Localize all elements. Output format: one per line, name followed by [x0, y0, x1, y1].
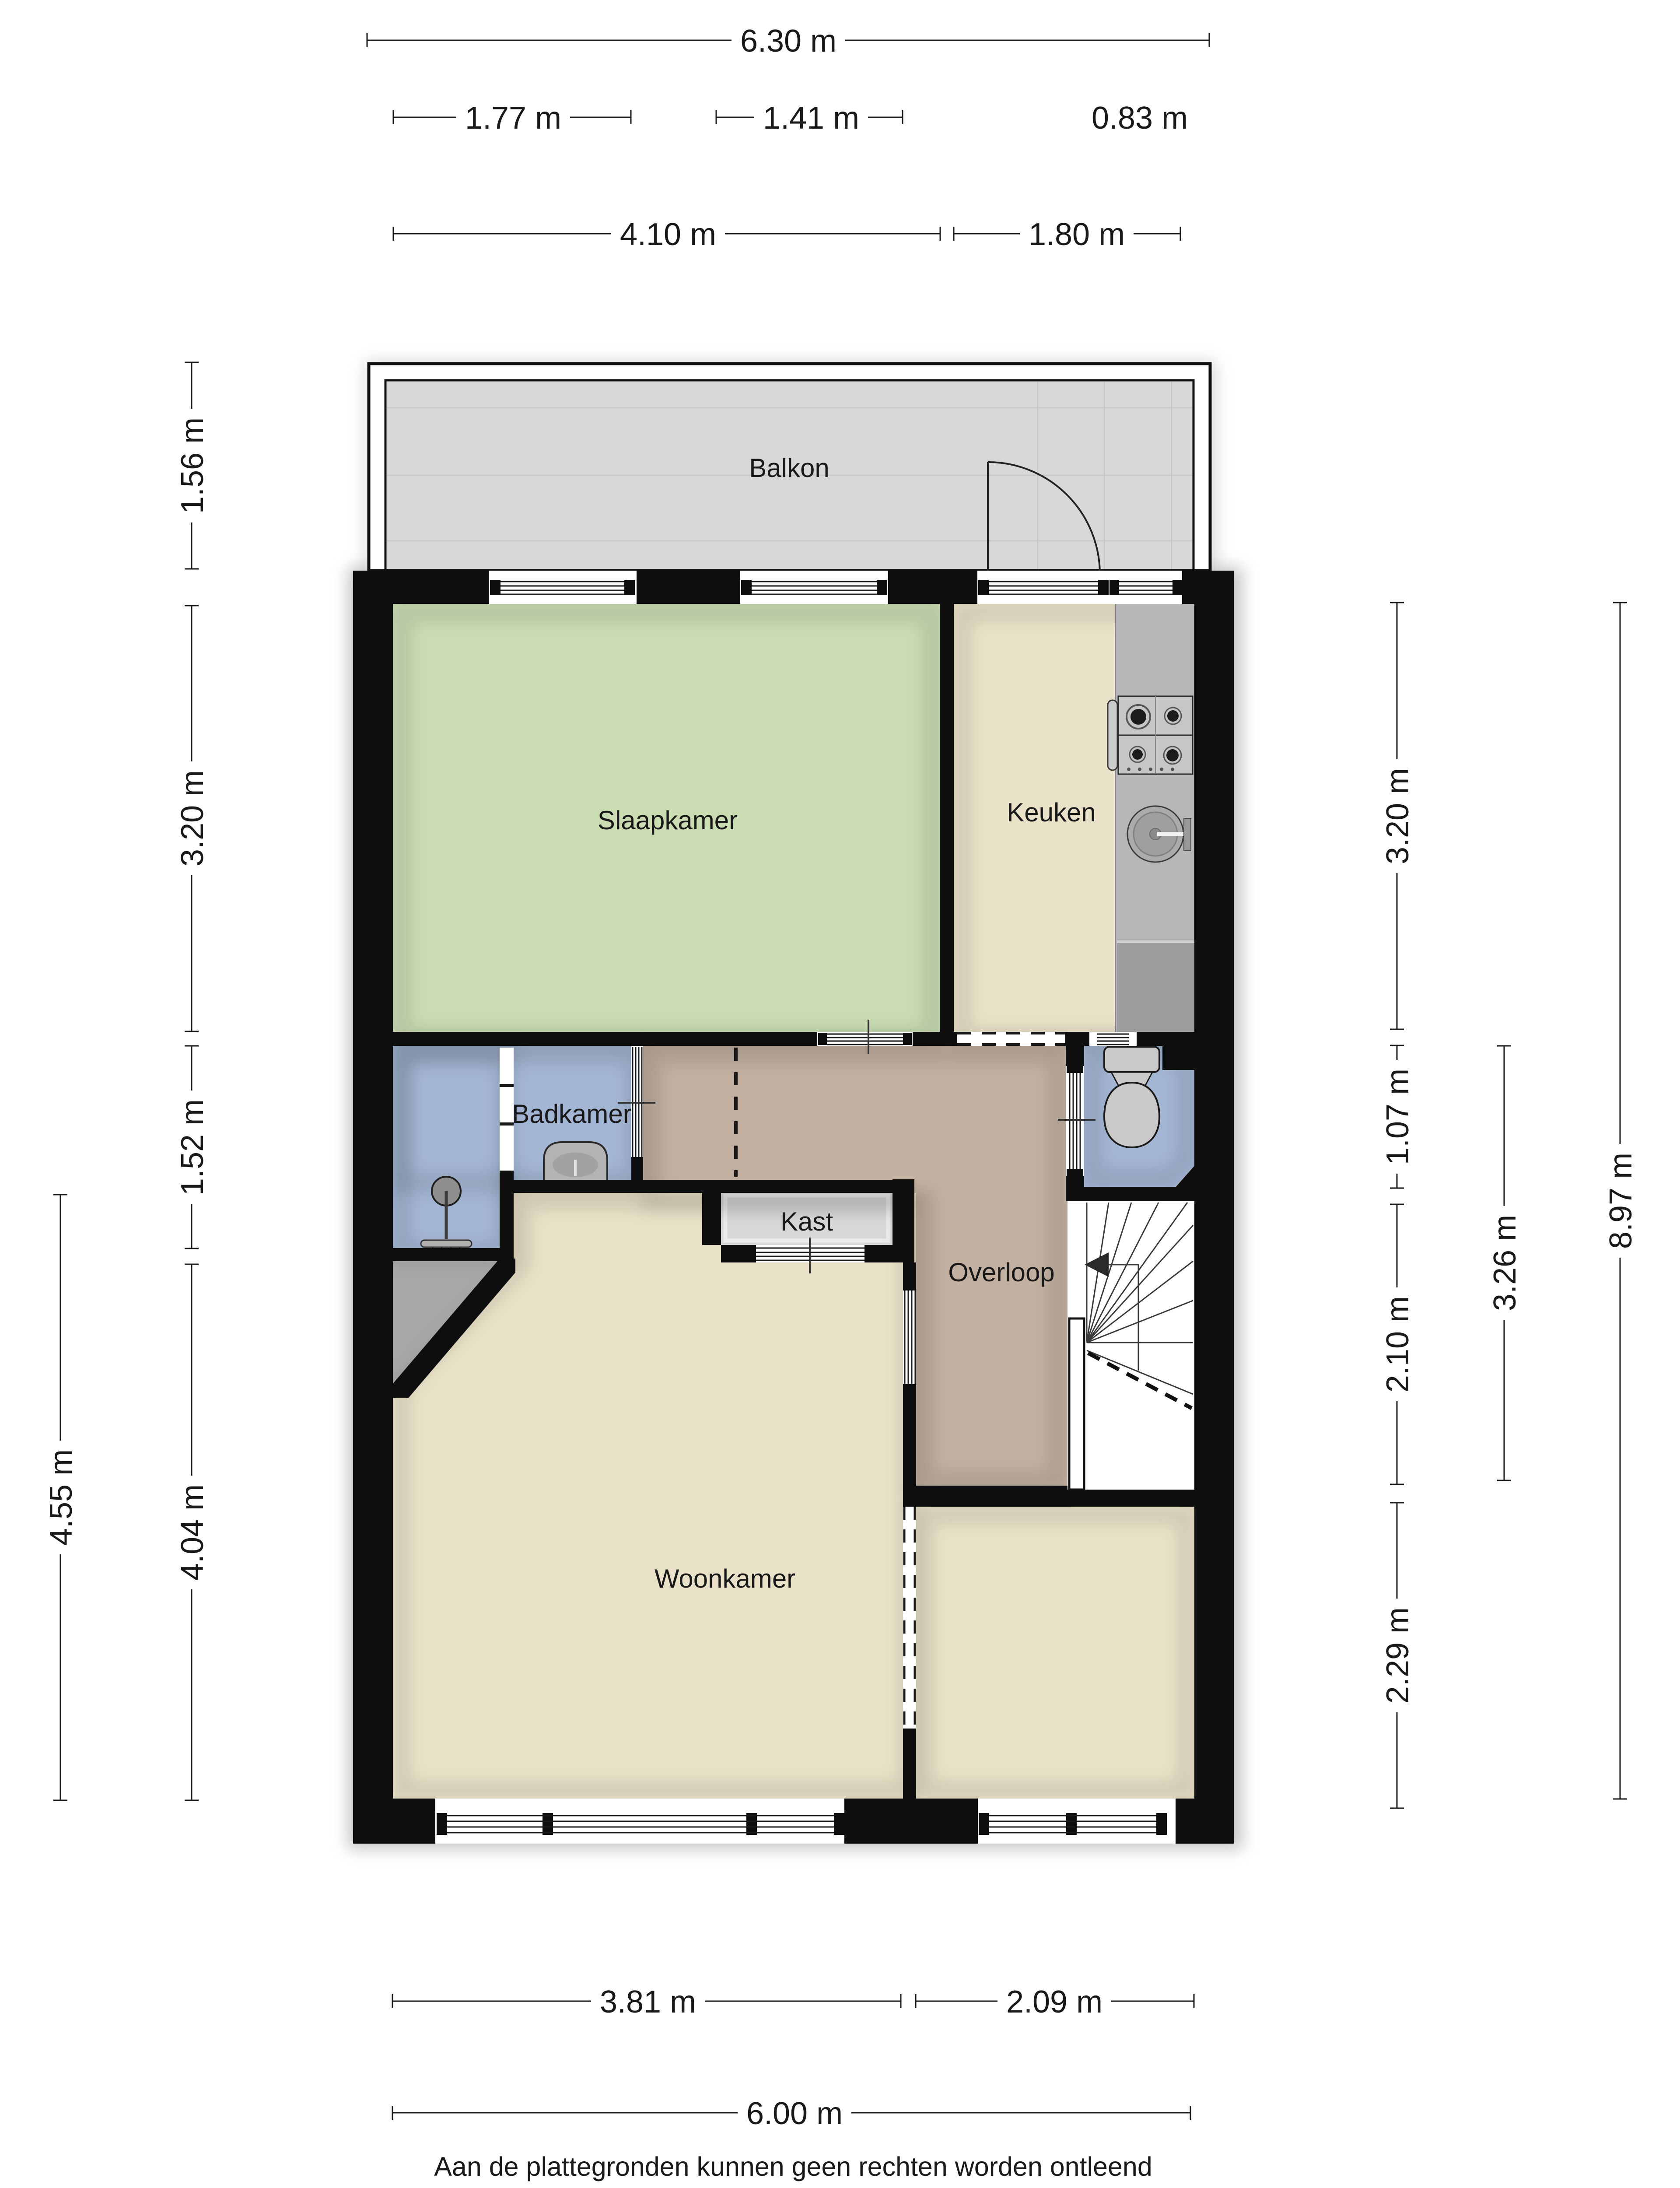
svg-text:1.56 m: 1.56 m — [175, 417, 210, 514]
svg-text:2.10 m: 2.10 m — [1380, 1296, 1415, 1392]
svg-text:3.81 m: 3.81 m — [600, 1985, 696, 2020]
svg-text:2.29 m: 2.29 m — [1380, 1607, 1415, 1704]
svg-text:Balkon: Balkon — [749, 453, 829, 483]
svg-text:6.00 m: 6.00 m — [746, 2096, 843, 2131]
svg-text:Aan de plattegronden kunnen ge: Aan de plattegronden kunnen geen rechten… — [434, 2152, 1152, 2181]
svg-text:3.26 m: 3.26 m — [1487, 1215, 1522, 1311]
svg-text:2.09 m: 2.09 m — [1006, 1985, 1102, 2020]
svg-text:3.20 m: 3.20 m — [175, 770, 210, 866]
svg-text:3.20 m: 3.20 m — [1380, 768, 1415, 864]
svg-text:Woonkamer: Woonkamer — [654, 1564, 795, 1593]
svg-text:0.83 m: 0.83 m — [1092, 101, 1188, 136]
svg-text:1.77 m: 1.77 m — [465, 101, 561, 136]
svg-text:1.07 m: 1.07 m — [1380, 1069, 1415, 1165]
svg-text:4.55 m: 4.55 m — [44, 1449, 79, 1546]
svg-text:4.04 m: 4.04 m — [175, 1484, 210, 1581]
svg-text:1.41 m: 1.41 m — [763, 101, 859, 136]
svg-text:8.97 m: 8.97 m — [1603, 1153, 1638, 1249]
svg-text:Overloop: Overloop — [948, 1258, 1054, 1287]
svg-text:6.30 m: 6.30 m — [740, 24, 836, 59]
svg-text:1.80 m: 1.80 m — [1029, 217, 1125, 252]
svg-text:1.52 m: 1.52 m — [175, 1099, 210, 1196]
svg-text:4.10 m: 4.10 m — [620, 217, 716, 252]
svg-text:Kast: Kast — [780, 1207, 833, 1236]
svg-text:Keuken: Keuken — [1007, 798, 1096, 827]
svg-text:Slaapkamer: Slaapkamer — [598, 806, 738, 835]
svg-text:Badkamer: Badkamer — [512, 1099, 631, 1129]
